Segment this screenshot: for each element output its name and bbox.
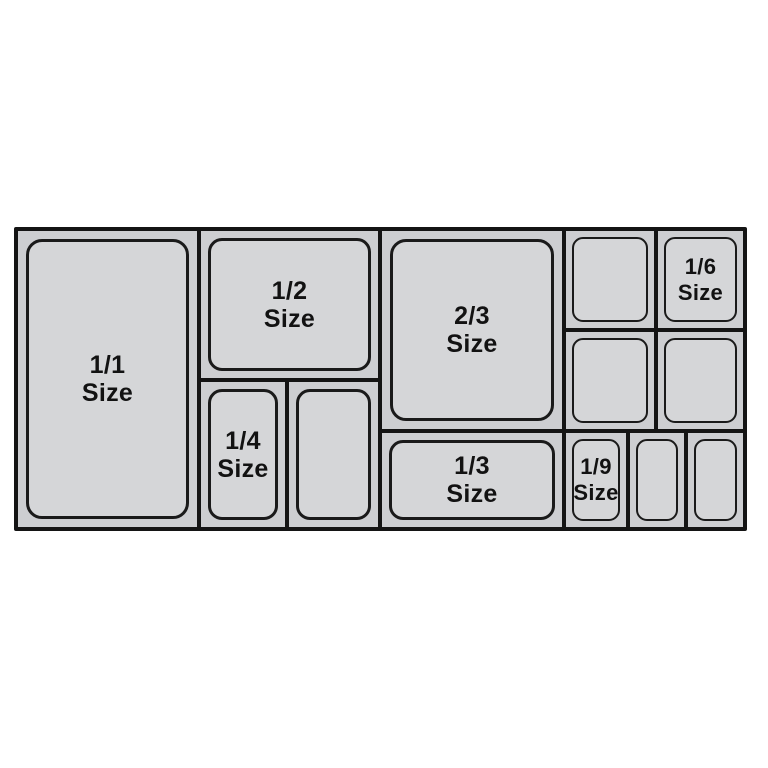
cell-1-4-unlabeled: [289, 382, 378, 527]
cell-1-1: 1/1 Size: [18, 231, 197, 527]
pan-1-4-word: Size: [217, 455, 268, 483]
pan-2-3-word: Size: [446, 330, 497, 358]
pan-1-2-label: 1/2 Size: [264, 277, 315, 333]
pan-1-4-unlabeled: [296, 389, 371, 520]
pan-1-6-unlabeled-3: [664, 338, 737, 423]
pan-1-9-fraction: 1/9: [573, 454, 618, 480]
pan-1-2-word: Size: [264, 305, 315, 333]
pan-1-9-unlabeled-1: [636, 439, 678, 521]
pan-1-4: 1/4 Size: [208, 389, 278, 520]
cell-1-6-labeled: 1/6 Size: [658, 231, 743, 328]
cell-1-6-unlabeled-1: [566, 231, 654, 328]
cell-1-3: 1/3 Size: [382, 433, 562, 527]
pan-1-6-unlabeled-2: [572, 338, 648, 423]
pan-1-1-label: 1/1 Size: [82, 351, 133, 407]
cell-1-2: 1/2 Size: [201, 231, 378, 378]
pan-2-3-label: 2/3 Size: [446, 302, 497, 358]
pan-1-9: 1/9 Size: [572, 439, 620, 521]
pan-1-9-label: 1/9 Size: [573, 454, 618, 506]
pan-1-2-fraction: 1/2: [264, 277, 315, 305]
cell-1-9-labeled: 1/9 Size: [566, 433, 626, 527]
pan-1-6-fraction: 1/6: [678, 254, 723, 280]
pan-1-4-label: 1/4 Size: [217, 427, 268, 483]
pan-1-4-fraction: 1/4: [217, 427, 268, 455]
cell-2-3: 2/3 Size: [382, 231, 562, 429]
pan-1-1: 1/1 Size: [26, 239, 189, 519]
pan-1-6-word: Size: [678, 280, 723, 306]
cell-1-4-labeled: 1/4 Size: [201, 382, 285, 527]
pan-2-3: 2/3 Size: [390, 239, 554, 421]
pan-size-diagram: 1/1 Size 1/2 Size 1/4 Size 2/3 Si: [14, 227, 747, 531]
pan-1-6-label: 1/6 Size: [678, 254, 723, 306]
pan-1-3-label: 1/3 Size: [446, 452, 497, 508]
pan-2-3-fraction: 2/3: [446, 302, 497, 330]
pan-1-9-unlabeled-2: [694, 439, 737, 521]
pan-1-3-word: Size: [446, 480, 497, 508]
pan-1-3: 1/3 Size: [389, 440, 555, 520]
cell-1-6-unlabeled-3: [658, 332, 743, 429]
cell-1-9-unlabeled-1: [630, 433, 684, 527]
pan-1-1-word: Size: [82, 379, 133, 407]
pan-1-9-word: Size: [573, 480, 618, 506]
cell-1-9-unlabeled-2: [688, 433, 743, 527]
cell-1-6-unlabeled-2: [566, 332, 654, 429]
pan-1-6-unlabeled-1: [572, 237, 648, 322]
pan-1-3-fraction: 1/3: [446, 452, 497, 480]
pan-1-2: 1/2 Size: [208, 238, 371, 371]
pan-1-6: 1/6 Size: [664, 237, 737, 322]
pan-1-1-fraction: 1/1: [82, 351, 133, 379]
